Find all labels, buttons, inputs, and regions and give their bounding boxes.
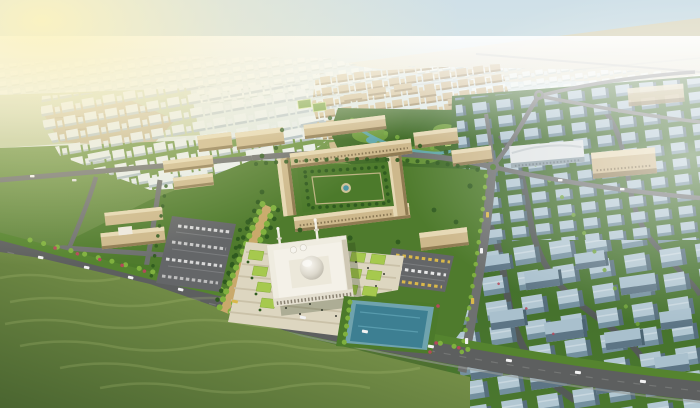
scene-canvas [0,0,700,408]
aerial-masterplan-rendering [0,0,700,408]
sun-glow [0,0,700,408]
